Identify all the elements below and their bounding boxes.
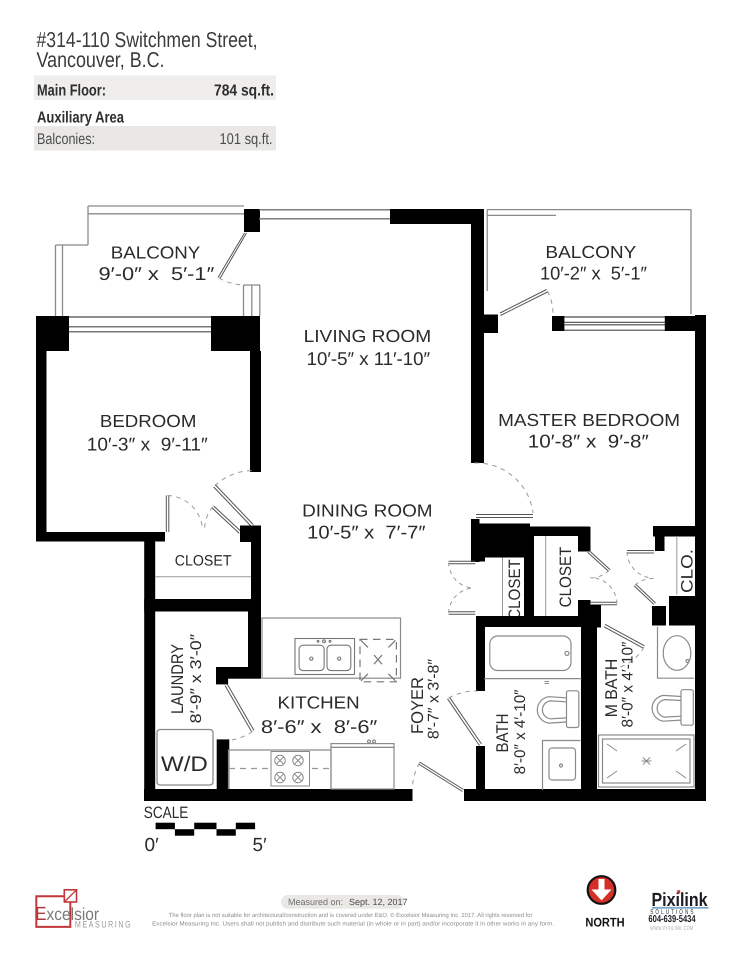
svg-text:10′-5″ x 7′-7″: 10′-5″ x 7′-7″ (307, 522, 426, 543)
svg-text:8′-0″ x 4′-10″: 8′-0″ x 4′-10″ (620, 641, 637, 727)
svg-text:10′-5″ x 11′-10″: 10′-5″ x 11′-10″ (307, 348, 431, 369)
svg-text:NORTH: NORTH (585, 916, 624, 930)
svg-text:Measured on:: Measured on: (288, 897, 343, 907)
svg-text:The floor plan is not suitable: The floor plan is not suitable for archi… (169, 912, 533, 919)
svg-text:LAUNDRY: LAUNDRY (168, 644, 187, 714)
svg-text:BALCONY: BALCONY (111, 242, 201, 262)
svg-text:8′-9″ x 3′-0″: 8′-9″ x 3′-0″ (188, 633, 205, 723)
svg-text:BATH: BATH (493, 713, 512, 752)
svg-text:604-639-5434: 604-639-5434 (648, 914, 696, 925)
svg-text:MEASURING: MEASURING (75, 919, 132, 930)
svg-text:CLOSET: CLOSET (175, 552, 232, 569)
svg-text:SCALE: SCALE (144, 804, 189, 822)
svg-text:Auxiliary Area: Auxiliary Area (37, 110, 124, 127)
svg-text:M BATH: M BATH (602, 659, 621, 718)
svg-text:10′-2″ x 5′-1″: 10′-2″ x 5′-1″ (540, 263, 647, 284)
svg-text:0′: 0′ (145, 835, 160, 856)
svg-text:BEDROOM: BEDROOM (100, 411, 196, 431)
svg-text:BALCONY: BALCONY (545, 242, 636, 262)
svg-text:LIVING ROOM: LIVING ROOM (304, 326, 432, 346)
svg-text:Vancouver, B.C.: Vancouver, B.C. (37, 48, 165, 72)
svg-text:8′-0″ x 4′-10″: 8′-0″ x 4′-10″ (512, 689, 529, 774)
svg-text:W/D: W/D (161, 753, 208, 776)
svg-text:CLOSET: CLOSET (506, 559, 524, 620)
svg-text:8′-7″ x 3′-8″: 8′-7″ x 3′-8″ (425, 658, 442, 739)
svg-text:9′-0″ x 5′-1″: 9′-0″ x 5′-1″ (99, 263, 215, 284)
svg-text:MASTER BEDROOM: MASTER BEDROOM (498, 410, 680, 430)
svg-text:10′-3″ x 9′-11″: 10′-3″ x 9′-11″ (87, 434, 208, 455)
svg-text:Excelsior Measuring Inc. Users: Excelsior Measuring Inc. Users shall not… (152, 921, 554, 928)
svg-text:CLO.: CLO. (679, 549, 697, 593)
svg-text:10′-8″ x 9′-8″: 10′-8″ x 9′-8″ (528, 431, 649, 452)
svg-text:101 sq.ft.: 101 sq.ft. (220, 131, 273, 148)
svg-text:5′: 5′ (253, 835, 268, 856)
svg-text:Main Floor:: Main Floor: (37, 83, 106, 100)
svg-text:FOYER: FOYER (408, 677, 427, 734)
svg-text:WWW.PIXILINK.COM: WWW.PIXILINK.COM (650, 925, 693, 932)
svg-text:8′-6″ x 8′-6″: 8′-6″ x 8′-6″ (261, 716, 378, 737)
svg-text:Balconies:: Balconies: (37, 131, 95, 148)
svg-text:KITCHEN: KITCHEN (278, 693, 360, 713)
svg-text:DINING ROOM: DINING ROOM (302, 500, 433, 520)
svg-text:784 sq.ft.: 784 sq.ft. (214, 83, 274, 100)
svg-text:CLOSET: CLOSET (557, 547, 575, 608)
svg-text:Sept. 12, 2017: Sept. 12, 2017 (349, 897, 408, 907)
